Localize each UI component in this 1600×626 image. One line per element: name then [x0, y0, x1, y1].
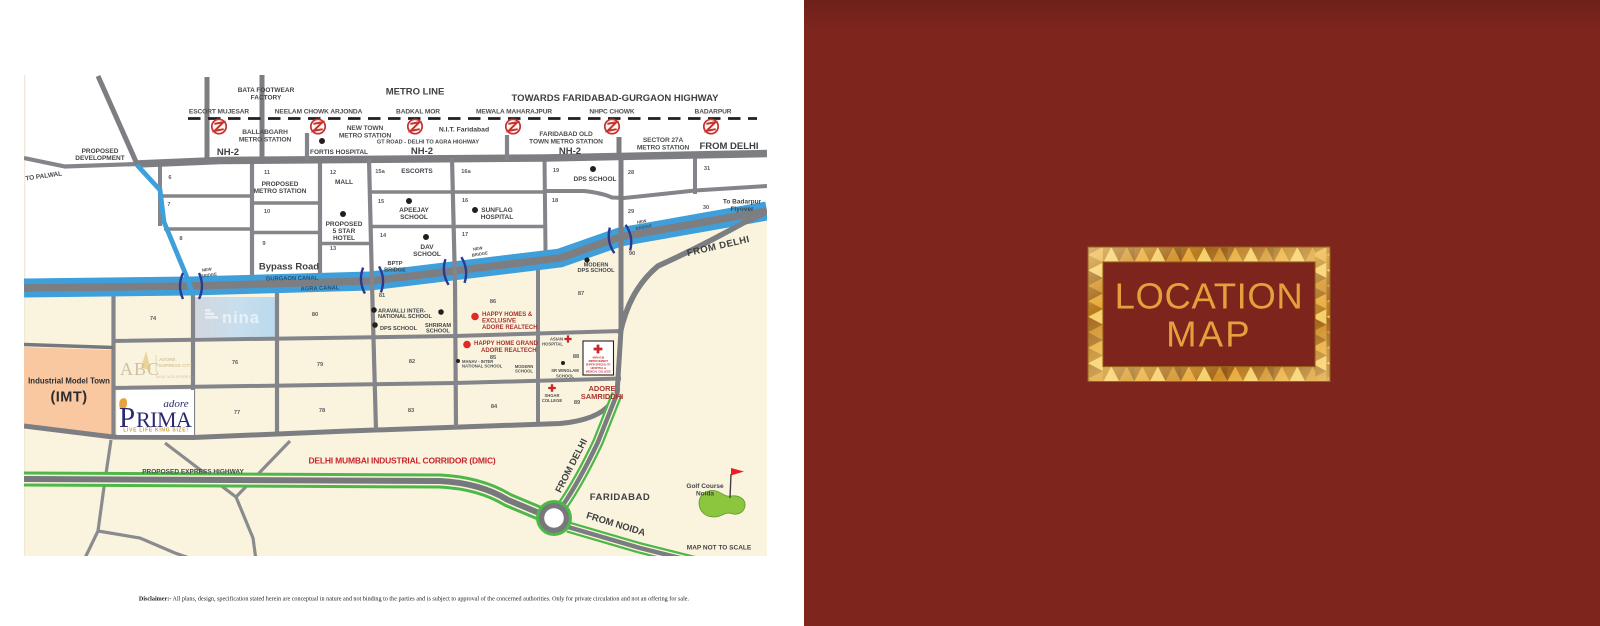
svg-text:SUNFLAG: SUNFLAG	[481, 207, 512, 214]
svg-text:nina: nina	[222, 309, 260, 327]
svg-text:MAP NOT TO SCALE: MAP NOT TO SCALE	[687, 545, 752, 552]
svg-text:NH-2: NH-2	[411, 146, 433, 157]
svg-text:17: 17	[462, 232, 468, 238]
svg-text:SR WINGLAM: SR WINGLAM	[551, 368, 579, 373]
svg-text:88: 88	[573, 354, 579, 360]
svg-text:6: 6	[168, 175, 171, 181]
svg-text:NATIONAL SCHOOL: NATIONAL SCHOOL	[462, 364, 503, 369]
svg-text:ADORE: ADORE	[159, 357, 176, 362]
svg-text:ABC: ABC	[120, 359, 160, 379]
svg-text:COLLEGE: COLLEGE	[542, 398, 562, 403]
svg-text:PROPOSED: PROPOSED	[82, 148, 119, 155]
svg-text:Noida: Noida	[696, 491, 714, 498]
svg-text:SCHOOL: SCHOOL	[556, 374, 574, 379]
svg-text:N.I.T. Faridabad: N.I.T. Faridabad	[439, 127, 489, 134]
svg-text:BPTP: BPTP	[388, 261, 403, 267]
svg-text:MVN-ICM: MVN-ICM	[593, 356, 604, 360]
svg-text:To Badarpur: To Badarpur	[723, 199, 762, 206]
svg-text:83: 83	[408, 408, 414, 414]
svg-text:84: 84	[491, 404, 498, 410]
svg-text:MAP: MAP	[1166, 314, 1252, 355]
svg-text:JAMA TATA EXPRESS: JAMA TATA EXPRESS	[155, 375, 194, 379]
svg-text:BRIDGE: BRIDGE	[384, 268, 406, 274]
svg-text:79: 79	[317, 362, 323, 368]
svg-text:19: 19	[553, 168, 559, 174]
svg-text:87: 87	[578, 291, 584, 297]
svg-text:LOCATION: LOCATION	[1115, 276, 1304, 317]
svg-text:ESCORTS: ESCORTS	[401, 168, 433, 175]
svg-text:HAPPY HOME GRAND: HAPPY HOME GRAND	[474, 341, 539, 347]
svg-text:NEW TOWN: NEW TOWN	[347, 125, 384, 132]
svg-text:GT ROAD - DELHI TO AGRA HIGHWA: GT ROAD - DELHI TO AGRA HIGHWAY	[377, 140, 479, 146]
svg-text:14: 14	[380, 233, 387, 239]
svg-text:80: 80	[312, 312, 318, 318]
svg-text:FACTORY: FACTORY	[251, 95, 282, 102]
svg-text:74: 74	[150, 316, 157, 322]
svg-text:13: 13	[330, 246, 336, 252]
svg-text:HAPPY HOMES &: HAPPY HOMES &	[482, 312, 533, 318]
svg-text:9: 9	[262, 241, 265, 247]
svg-text:29: 29	[628, 209, 634, 215]
svg-text:MEWALA MAHARAJPUR: MEWALA MAHARAJPUR	[476, 109, 552, 116]
svg-text:82: 82	[409, 359, 415, 365]
svg-text:MALL: MALL	[335, 179, 353, 186]
svg-text:BADKAL MOR: BADKAL MOR	[396, 109, 440, 116]
svg-text:METRO STATION: METRO STATION	[254, 188, 307, 195]
svg-text:90: 90	[629, 251, 635, 257]
svg-text:APEEJAY: APEEJAY	[399, 207, 429, 214]
svg-text:PROPOSED: PROPOSED	[326, 221, 363, 228]
svg-text:7: 7	[167, 202, 170, 208]
svg-text:16: 16	[462, 198, 468, 204]
svg-text:HOSPITAL &: HOSPITAL &	[591, 366, 607, 370]
svg-text:FORTIS HOSPITAL: FORTIS HOSPITAL	[310, 149, 368, 156]
svg-text:BADARPUR: BADARPUR	[695, 109, 732, 116]
svg-text:GURGAON CANAL: GURGAON CANAL	[266, 276, 319, 283]
svg-text:DPS SCHOOL: DPS SCHOOL	[380, 326, 418, 332]
svg-text:NH-2: NH-2	[217, 147, 239, 158]
svg-text:EXPRESS CITY: EXPRESS CITY	[159, 363, 192, 368]
svg-text:METRO STATION: METRO STATION	[339, 133, 392, 140]
svg-text:28: 28	[628, 170, 634, 176]
svg-text:PROPOSED EXPRESS HIGHWAY: PROPOSED EXPRESS HIGHWAY	[142, 469, 244, 476]
svg-text:SCHOOL: SCHOOL	[426, 329, 451, 335]
svg-text:12: 12	[330, 170, 336, 176]
svg-text:HOSPITAL: HOSPITAL	[481, 214, 513, 221]
svg-text:31: 31	[704, 166, 710, 172]
svg-text:DEVELOPMENT: DEVELOPMENT	[75, 155, 125, 162]
svg-text:FROM DELHI: FROM DELHI	[699, 141, 758, 152]
svg-text:SUPER SPECIALITY: SUPER SPECIALITY	[586, 363, 611, 367]
svg-text:TOWARDS FARIDABAD-GURGAON HIGH: TOWARDS FARIDABAD-GURGAON HIGHWAY	[512, 93, 720, 104]
svg-text:METRO LINE: METRO LINE	[386, 87, 445, 98]
svg-text:11: 11	[264, 170, 270, 176]
svg-text:Bypass Road: Bypass Road	[259, 262, 319, 273]
svg-text:Golf Course: Golf Course	[686, 483, 724, 490]
svg-text:METRO STATION: METRO STATION	[239, 137, 292, 144]
svg-text:IMPROVEMENT: IMPROVEMENT	[589, 359, 609, 363]
svg-text:DAV: DAV	[420, 244, 434, 251]
svg-text:(IMT): (IMT)	[50, 390, 87, 406]
svg-text:BALLABGARH: BALLABGARH	[242, 129, 288, 136]
svg-text:PROPOSED: PROPOSED	[262, 181, 299, 188]
svg-text:ADORE REALTECH: ADORE REALTECH	[481, 348, 537, 354]
svg-text:15a: 15a	[375, 169, 385, 175]
svg-text:Flyover: Flyover	[730, 206, 754, 213]
svg-text:SCHOOL: SCHOOL	[413, 251, 441, 258]
svg-text:18: 18	[552, 198, 558, 204]
svg-text:DPS SCHOOL: DPS SCHOOL	[574, 176, 617, 183]
svg-text:30: 30	[703, 205, 709, 211]
svg-text:76: 76	[232, 360, 238, 366]
svg-text:89: 89	[574, 400, 580, 406]
svg-text:NEELAM CHOWK ARJONDA: NEELAM CHOWK ARJONDA	[275, 109, 363, 116]
svg-text:10: 10	[264, 209, 270, 215]
svg-text:EXCLUSIVE: EXCLUSIVE	[482, 319, 516, 325]
svg-text:81: 81	[379, 293, 385, 299]
svg-text:SCHOOL: SCHOOL	[515, 369, 533, 374]
svg-text:FARIDABAD: FARIDABAD	[590, 492, 650, 503]
svg-text:Disclaimer:- All plans, design: Disclaimer:- All plans, design, specific…	[139, 596, 690, 603]
svg-text:MEDICAL COLLEGE: MEDICAL COLLEGE	[586, 370, 611, 374]
svg-text:8: 8	[179, 236, 182, 242]
svg-text:HOSPITAL: HOSPITAL	[542, 342, 563, 347]
svg-text:NATIONAL SCHOOL: NATIONAL SCHOOL	[378, 314, 432, 320]
svg-text:METRO STATION: METRO STATION	[637, 145, 690, 152]
svg-text:SCHOOL: SCHOOL	[400, 214, 428, 221]
svg-text:16a: 16a	[461, 169, 471, 175]
svg-text:HOTEL: HOTEL	[333, 235, 355, 242]
svg-text:LIVE LIFE KING SIZE!: LIVE LIFE KING SIZE!	[123, 428, 188, 434]
svg-text:ADORE REALTECH: ADORE REALTECH	[482, 325, 538, 331]
svg-text:78: 78	[319, 408, 325, 414]
svg-text:DPS SCHOOL: DPS SCHOOL	[578, 268, 616, 274]
svg-text:NHPC CHOWK: NHPC CHOWK	[589, 109, 634, 116]
svg-text:SAMRIDDHI: SAMRIDDHI	[581, 392, 624, 401]
svg-text:TOWN METRO STATION: TOWN METRO STATION	[529, 139, 603, 146]
svg-text:BATA FOOTWEAR: BATA FOOTWEAR	[238, 87, 295, 94]
svg-text:DELHI MUMBAI INDUSTRIAL CORRID: DELHI MUMBAI INDUSTRIAL CORRIDOR (DMIC)	[308, 456, 495, 466]
svg-text:77: 77	[234, 410, 240, 416]
svg-text:SECTOR 27A: SECTOR 27A	[643, 137, 684, 144]
svg-text:Industrial Model Town: Industrial Model Town	[28, 377, 110, 386]
svg-text:ESCORT MUJESAR: ESCORT MUJESAR	[189, 109, 249, 116]
svg-text:5 STAR: 5 STAR	[333, 228, 356, 235]
svg-text:FARIDABAD OLD: FARIDABAD OLD	[539, 131, 593, 138]
svg-text:NH-2: NH-2	[559, 146, 581, 157]
svg-text:86: 86	[490, 299, 496, 305]
svg-text:15: 15	[378, 199, 384, 205]
